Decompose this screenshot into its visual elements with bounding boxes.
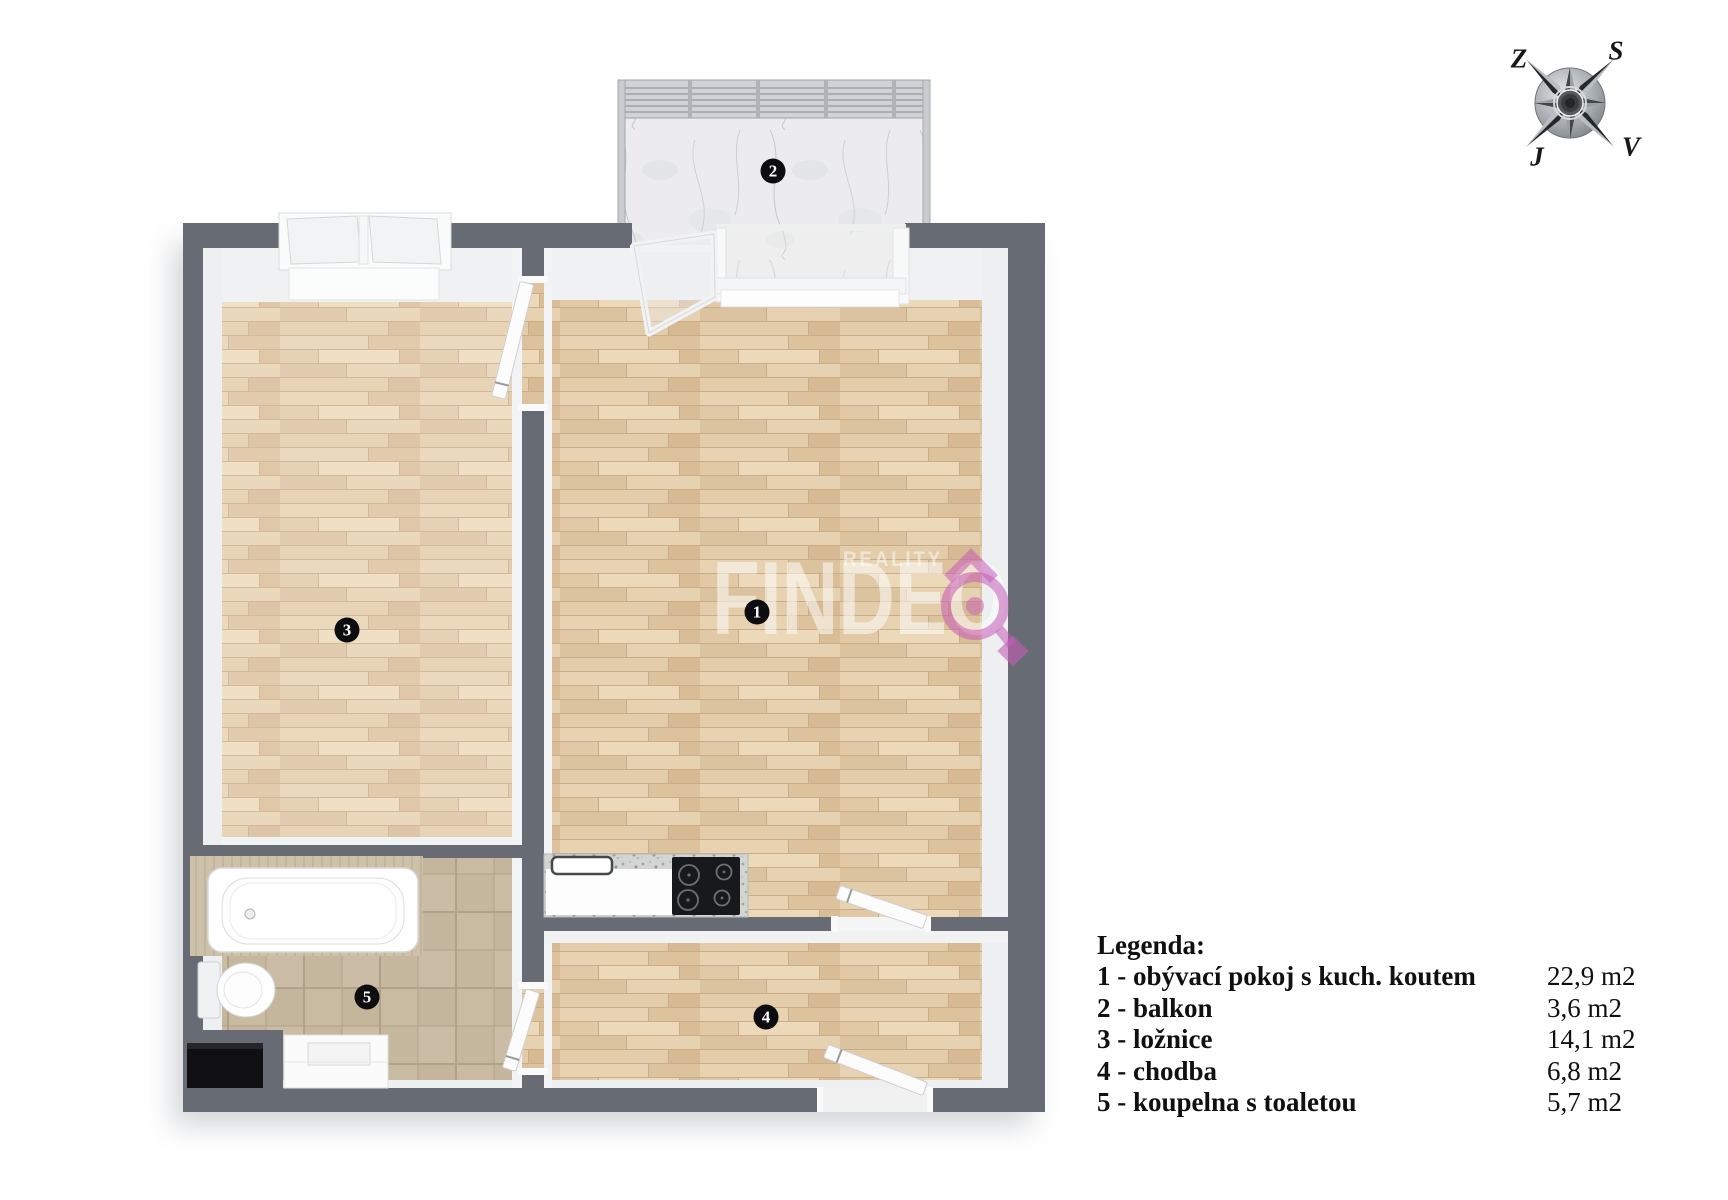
compass-south-label: J (1530, 142, 1544, 173)
legend-row-label: 4 - chodba (1097, 1056, 1217, 1086)
room-marker-bedroom: 3 (335, 618, 360, 643)
legend-row: 5 - koupelna s toaletou 5,7 m2 (1097, 1087, 1697, 1119)
legend-row-label: 1 - obývací pokoj s kuch. koutem (1097, 961, 1476, 991)
compass-east-label: V (1622, 132, 1640, 163)
legend-row-label: 3 - ložnice (1097, 1024, 1212, 1054)
room-marker-balcony: 2 (761, 159, 786, 184)
room-marker-bathroom: 5 (355, 985, 380, 1010)
legend-row-label: 5 - koupelna s toaletou (1097, 1087, 1357, 1117)
legend-row: 4 - chodba 6,8 m2 (1097, 1056, 1697, 1088)
legend-row: 2 - balkon 3,6 m2 (1097, 993, 1697, 1025)
legend-row-area: 6,8 m2 (1547, 1056, 1622, 1088)
legend-row-area: 14,1 m2 (1547, 1024, 1636, 1056)
legend-row-label: 2 - balkon (1097, 993, 1213, 1023)
legend-row-area: 3,6 m2 (1547, 993, 1622, 1025)
legend-row-area: 5,7 m2 (1547, 1087, 1622, 1119)
legend-row-area: 22,9 m2 (1547, 961, 1636, 993)
compass-west-label: Z (1511, 44, 1528, 75)
legend-row: 3 - ložnice 14,1 m2 (1097, 1024, 1697, 1056)
floor-plan-page: REALITY FINDEO (0, 0, 1728, 1200)
legend: Legenda: 1 - obývací pokoj s kuch. koute… (1097, 929, 1697, 1119)
room-marker-hallway: 4 (754, 1005, 779, 1030)
room-marker-living: 1 (745, 600, 770, 625)
legend-row: 1 - obývací pokoj s kuch. koutem 22,9 m2 (1097, 961, 1697, 993)
compass-north-label: S (1608, 36, 1623, 67)
legend-title: Legenda: (1097, 929, 1697, 961)
